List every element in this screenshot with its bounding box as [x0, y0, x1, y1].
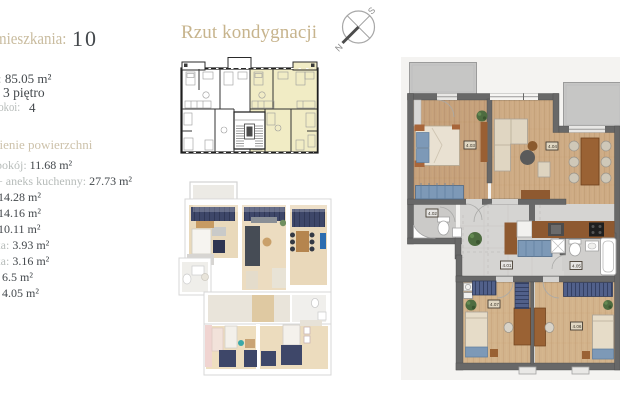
svg-text:S: S [366, 5, 377, 16]
svg-text:4.07: 4.07 [490, 302, 499, 307]
svg-text:N: N [333, 42, 345, 54]
svg-text:4.05: 4.05 [572, 264, 581, 269]
svg-text:4.01: 4.01 [503, 263, 512, 268]
svg-text:4.04: 4.04 [548, 144, 557, 149]
svg-text:4.06: 4.06 [573, 324, 582, 329]
svg-text:4.02: 4.02 [428, 211, 437, 216]
svg-text:4.03: 4.03 [466, 143, 475, 148]
